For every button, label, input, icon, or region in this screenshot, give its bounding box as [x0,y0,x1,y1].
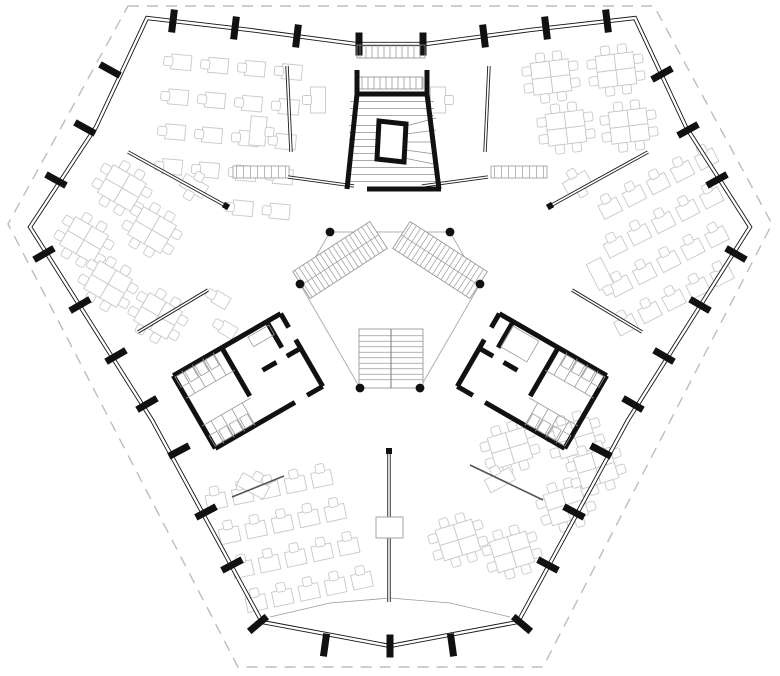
cabinet-bottom [376,517,403,538]
table [431,87,454,113]
floor-plan-page [0,0,780,676]
floor-plan-svg [0,0,780,676]
cabinet-row-right [491,166,547,178]
stair-core-newel [377,121,406,162]
bridge-steps-hatch [362,77,422,89]
table [211,316,238,339]
table-cluster [424,508,492,572]
table-cluster [585,42,647,98]
table [303,87,326,113]
sanitary-core-left-walls [173,314,322,449]
entry-steps-hatch [360,45,420,58]
desk-grid-bottom-left [203,458,373,616]
table-cluster [478,520,546,584]
desk-grid-right [560,141,769,336]
cabinet-row-left [233,166,289,178]
table-cluster [535,100,597,156]
bridge-steps [359,77,423,89]
table-cluster [598,98,660,154]
desk-grid-top-left [151,53,302,219]
entry-steps [357,45,425,58]
table [204,286,231,309]
stair-treads-upper [350,102,434,116]
table-cluster [520,49,582,105]
stair-treads-lower [350,168,437,182]
